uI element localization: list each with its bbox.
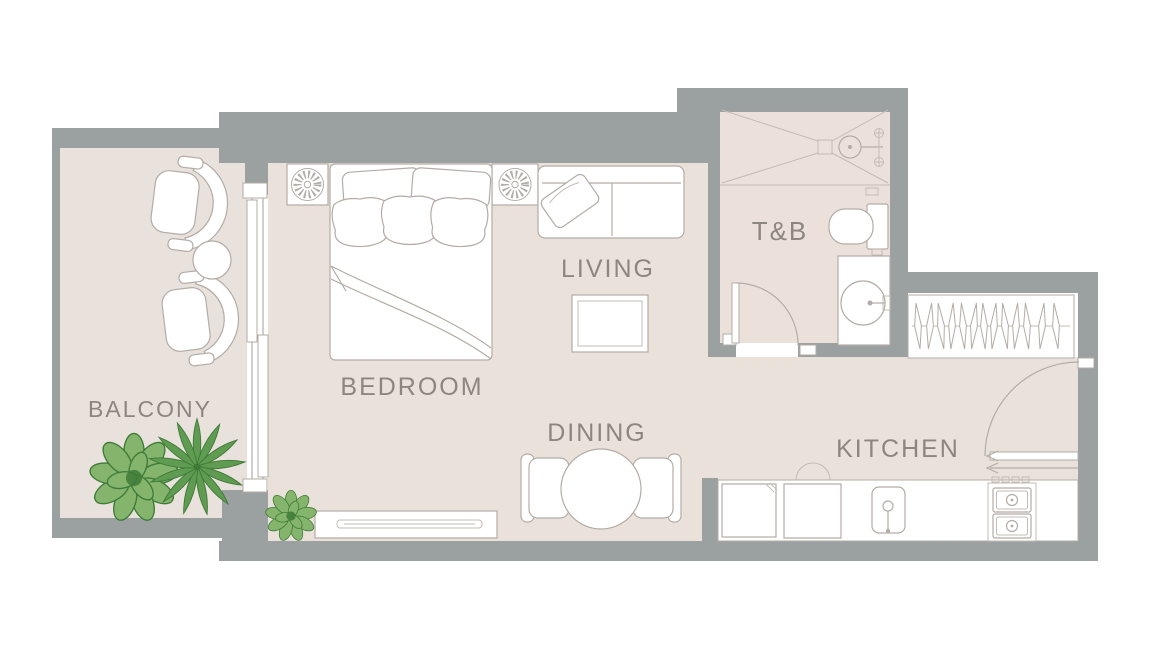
toilet — [829, 204, 888, 249]
sofa — [538, 166, 684, 238]
bath-top-wall — [677, 88, 908, 112]
counter-stub-wall — [702, 478, 718, 541]
dining-label: DINING — [547, 419, 647, 447]
door-jamb — [1078, 358, 1094, 368]
balcony-divider-pillar-bottom — [222, 490, 268, 561]
sliding-panel — [247, 200, 257, 342]
bath-left-wall — [708, 130, 720, 357]
floor-plan-canvas: BALCONY — [0, 0, 1152, 648]
sliding-panel — [258, 335, 268, 477]
bath-right-wall — [890, 88, 908, 357]
balcony-top-wall — [55, 128, 247, 148]
dining-table — [561, 449, 641, 529]
vanity-sink — [838, 256, 890, 345]
living-label: LIVING — [561, 255, 655, 283]
tv-console — [315, 511, 497, 538]
double-bed — [330, 164, 492, 360]
balcony-left-wall — [52, 128, 60, 538]
kitchen-top-wall — [890, 272, 1098, 293]
bedside-lamp-icon — [292, 169, 324, 201]
kitchen-label: KITCHEN — [836, 435, 960, 463]
bedroom-label: BEDROOM — [340, 373, 483, 401]
coffee-table — [572, 295, 648, 352]
door-jamb — [243, 479, 267, 492]
door-leaf — [732, 283, 739, 343]
side-table-icon — [193, 241, 231, 279]
wardrobe — [908, 295, 1074, 358]
toilet-bath-label: T&B — [752, 216, 809, 246]
door-leaf — [990, 452, 1078, 460]
balcony-bottom-wall — [55, 518, 247, 538]
balcony-label: BALCONY — [88, 396, 212, 422]
top-wall — [219, 112, 720, 163]
door-jamb — [800, 345, 816, 355]
bedside-lamp-icon — [499, 169, 531, 201]
bottom-wall — [219, 541, 1098, 561]
toilet-bowl — [829, 209, 873, 244]
door-jamb — [243, 183, 267, 198]
right-wall — [1078, 272, 1098, 561]
